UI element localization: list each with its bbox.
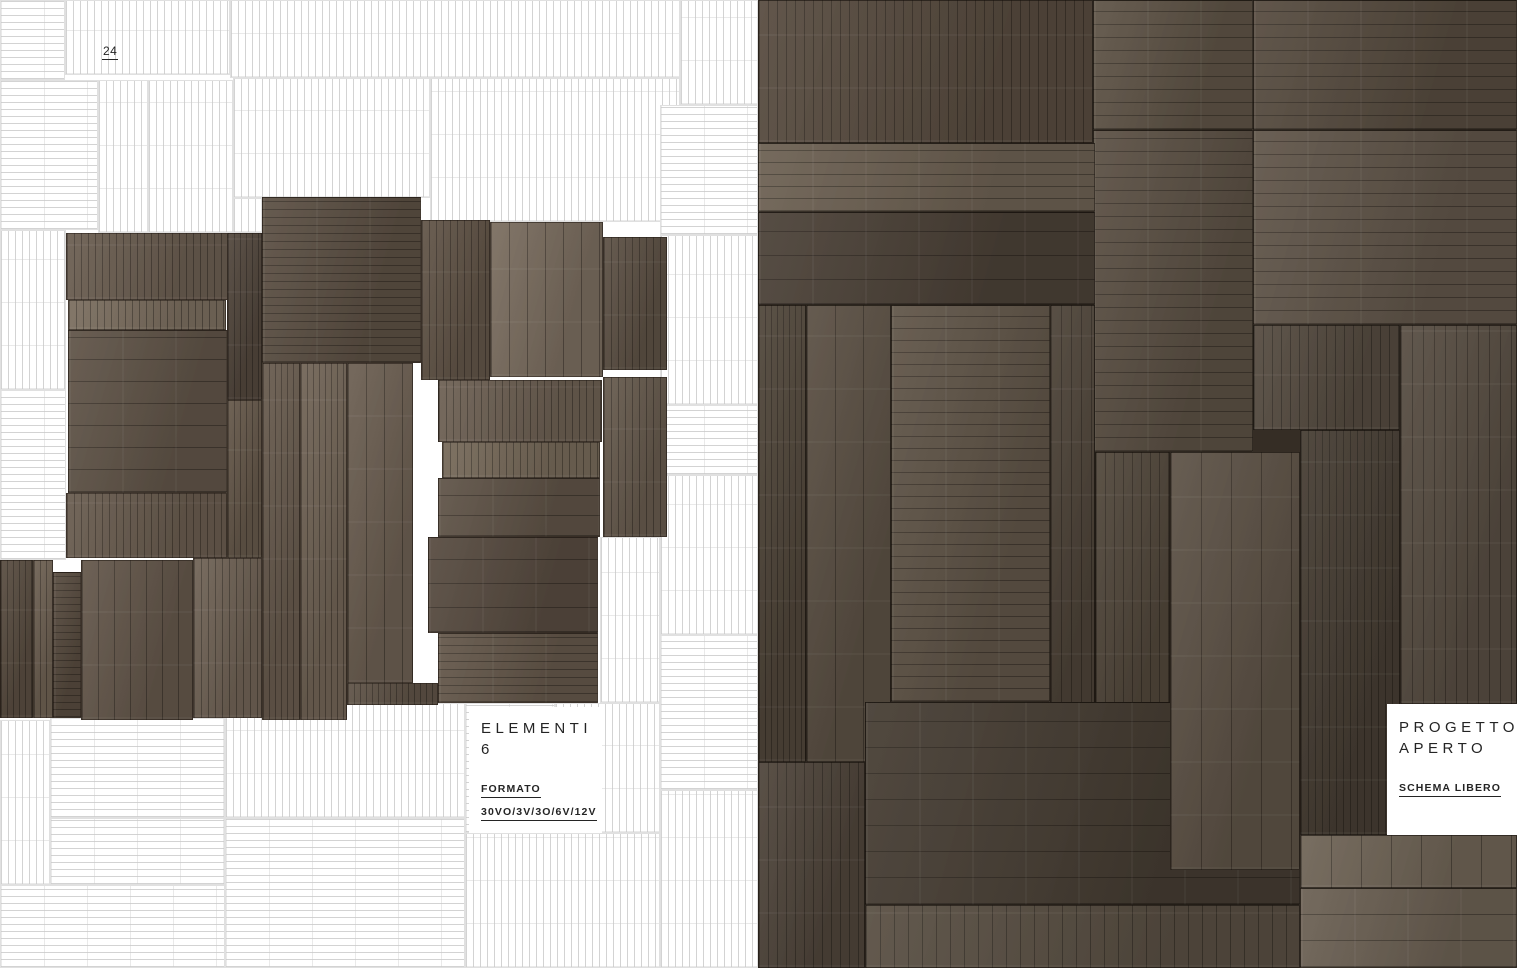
scheme-title-line-2: APERTO xyxy=(1399,738,1509,759)
wood-tile xyxy=(227,400,262,558)
wood-tile xyxy=(300,363,347,720)
photo-panel xyxy=(758,762,865,968)
wood-tile xyxy=(227,233,262,400)
photo-panel xyxy=(1253,130,1517,325)
photo-panel xyxy=(1300,430,1400,835)
format-value: 30VO/3V/3O/6V/12V xyxy=(481,806,597,821)
wood-tile xyxy=(438,478,600,537)
wood-tile xyxy=(442,442,600,478)
series-title-line-1: ELEMENTI xyxy=(481,718,594,739)
wood-tile xyxy=(347,363,413,683)
catalog-spread: 24 ELEMENTI 6 FORMATO 30VO/3V/3O/6V/12V … xyxy=(0,0,1517,968)
left-page: 24 ELEMENTI 6 FORMATO 30VO/3V/3O/6V/12V xyxy=(0,0,758,968)
wood-tile xyxy=(68,330,227,493)
photo-panel xyxy=(758,143,1095,212)
photo-panel xyxy=(865,905,1300,968)
progetto-label-box: PROGETTO APERTO SCHEMA LIBERO xyxy=(1387,704,1517,835)
wood-tile xyxy=(66,493,227,558)
wood-tile xyxy=(0,560,33,718)
photo-panel xyxy=(806,305,891,762)
format-label: FORMATO xyxy=(481,783,541,798)
photo-panel xyxy=(1050,305,1095,762)
wood-tile xyxy=(490,222,603,377)
wood-tile xyxy=(438,380,602,442)
photo-panel xyxy=(1300,888,1517,968)
wood-tile xyxy=(33,560,53,718)
wood-tile xyxy=(603,377,667,537)
scheme-subtitle: SCHEMA LIBERO xyxy=(1399,782,1501,797)
photo-panel xyxy=(1170,452,1300,870)
wood-tile xyxy=(68,300,226,330)
wood-tile xyxy=(438,633,598,703)
wood-tile xyxy=(53,572,81,718)
photo-panel xyxy=(891,305,1050,702)
photo-panel xyxy=(758,212,1095,305)
series-title-line-2: 6 xyxy=(481,739,594,760)
photo-panel xyxy=(1093,0,1253,130)
wood-tile xyxy=(81,560,193,720)
scheme-title-line-1: PROGETTO xyxy=(1399,717,1509,738)
photo-panel xyxy=(1300,835,1517,888)
wood-tile xyxy=(262,363,300,720)
wood-tile xyxy=(66,233,228,300)
wood-tile xyxy=(428,537,598,633)
photo-panel xyxy=(1400,325,1517,704)
photo-panel xyxy=(758,0,1093,143)
wood-tile xyxy=(347,683,438,705)
wood-tile xyxy=(262,197,421,363)
wood-tile xyxy=(193,558,262,718)
wood-tile xyxy=(421,220,490,380)
photo-panel xyxy=(1093,130,1253,452)
right-page-photo: PROGETTO APERTO SCHEMA LIBERO xyxy=(758,0,1517,968)
wood-tile xyxy=(603,237,667,370)
photo-panel xyxy=(1253,0,1517,130)
wood-tile-cluster-layer xyxy=(0,0,758,968)
page-number: 24 xyxy=(102,44,118,60)
photo-panel xyxy=(1253,325,1400,430)
elementi-label-box: ELEMENTI 6 FORMATO 30VO/3V/3O/6V/12V xyxy=(469,707,602,833)
photo-panel xyxy=(758,305,806,762)
